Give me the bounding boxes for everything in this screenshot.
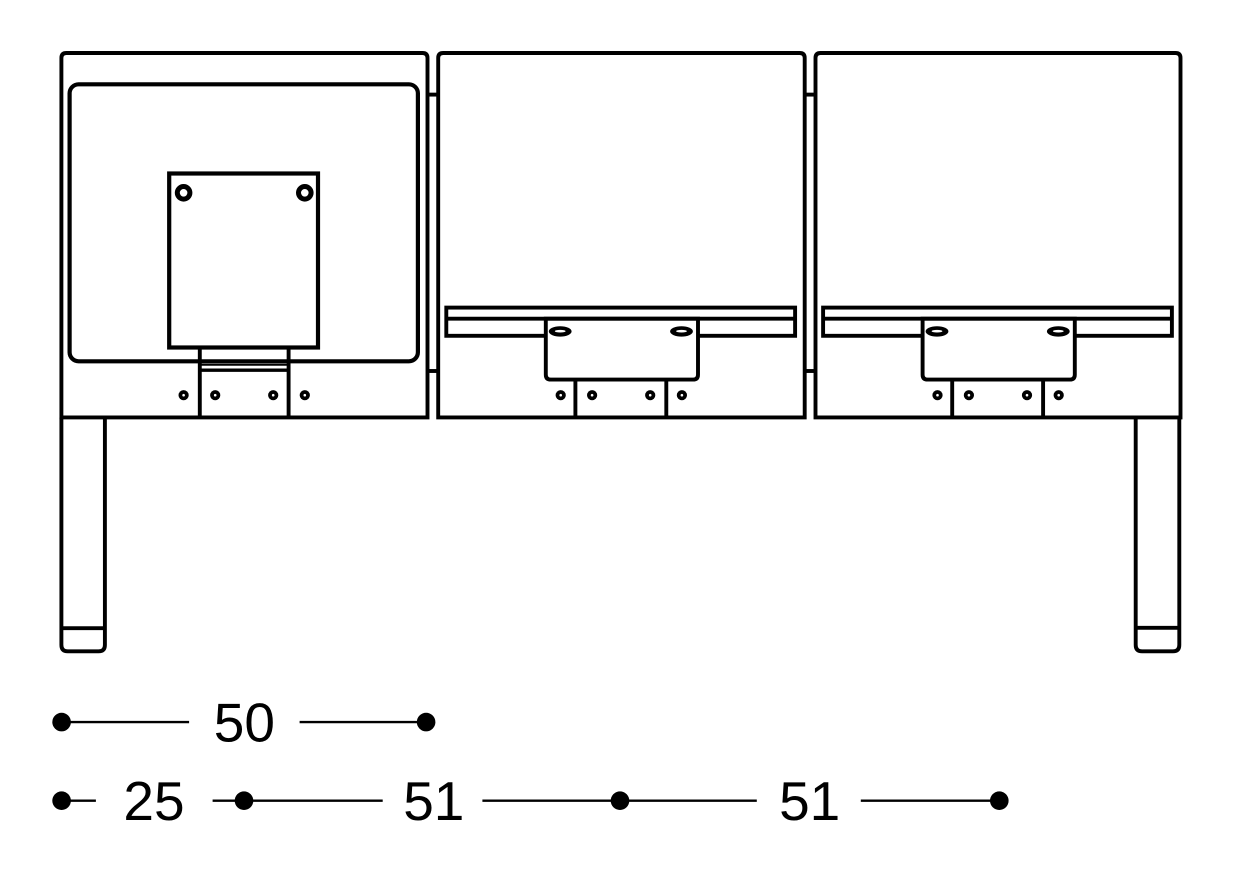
svg-text:25: 25 (123, 770, 184, 832)
svg-text:50: 50 (214, 692, 275, 754)
svg-text:51: 51 (403, 770, 464, 832)
svg-text:51: 51 (779, 770, 840, 832)
